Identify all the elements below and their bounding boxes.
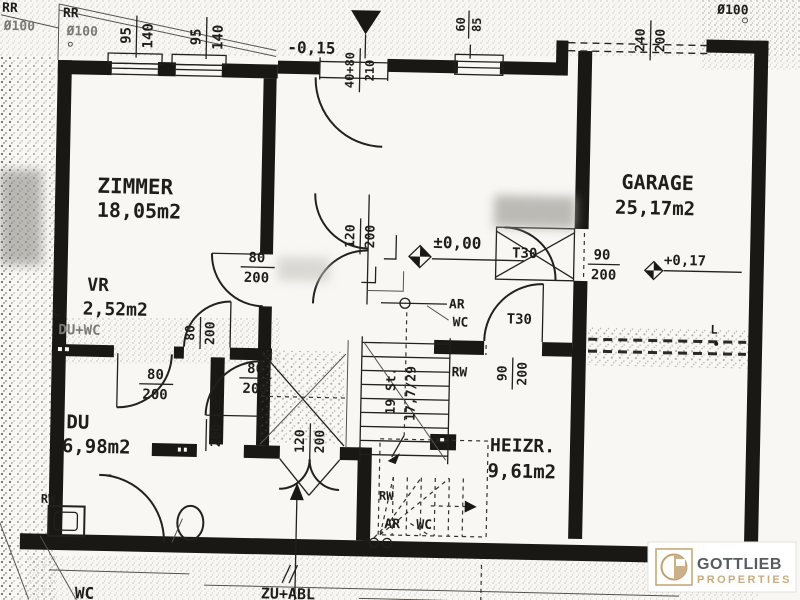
mark-l-left: L	[53, 305, 61, 319]
t30-low-label: T30	[506, 311, 532, 328]
room-area-zimmer: 18,05m2	[97, 198, 182, 224]
level-garage: +0,17	[664, 253, 706, 270]
win2-width: 95	[188, 28, 204, 45]
win2-height: 140	[210, 25, 227, 51]
win1-height: 140	[140, 23, 157, 49]
entry-door-width: 40+80	[342, 52, 357, 88]
level-ground: ±0,00	[433, 233, 482, 253]
t30-top-label: T30	[512, 246, 538, 263]
wc-double-height: 200	[313, 429, 328, 453]
vent-ar2: AR	[384, 517, 400, 532]
room-label-wc: WC	[75, 583, 95, 600]
wc-door-height: 200	[242, 381, 268, 398]
t30-low-width: 90	[495, 365, 510, 381]
win1-width: 95	[118, 27, 134, 44]
hall-double-width: 120	[343, 224, 358, 248]
level-entry: -0,15	[287, 38, 336, 58]
zimmer-door-width: 80	[248, 250, 265, 266]
stair-count: 19 St.	[384, 367, 400, 414]
vr-door-height: 200	[203, 321, 218, 345]
vent-zuabl: ZU+ABL	[261, 584, 316, 600]
vent-wc1: WC	[452, 315, 468, 330]
roof-drain-dia: Ø100	[716, 3, 749, 19]
vent-rw3: RW	[379, 489, 395, 503]
floorplan-drawing: RR Ø100 RR Ø100 Ø100 95 140 95 140 60 85…	[0, 0, 800, 600]
vent-ar1: AR	[449, 297, 465, 312]
entry-door-height: 210	[363, 60, 377, 82]
room-label-duwc: DU+WC	[58, 322, 100, 339]
brand-name: GOTTLIEB	[697, 556, 782, 573]
t30-top-height: 200	[591, 267, 617, 284]
win3-height: 85	[470, 17, 484, 32]
t30-top-width: 90	[593, 247, 610, 263]
brand-tagline: PROPERTIES	[697, 574, 792, 586]
garage-door-width: 240	[633, 28, 648, 52]
wc-double-width: 120	[293, 429, 308, 453]
brand-logo: GOTTLIEB PROPERTIES	[648, 542, 796, 592]
vr-door-width: 80	[183, 325, 198, 341]
small-door-height: 200	[209, 423, 224, 447]
room-area-du: 6,98m2	[62, 435, 131, 458]
garage-door-height: 200	[653, 29, 668, 53]
rr1-label: RR	[2, 1, 18, 16]
vent-rw1: RW	[451, 365, 467, 380]
room-label-vr: VR	[87, 275, 109, 296]
rr2-label: RR	[63, 6, 79, 21]
t30-low-height: 200	[515, 362, 530, 386]
vent-rw2: RW	[41, 492, 57, 506]
room-area-vr: 2,52m2	[83, 299, 148, 321]
room-label-heizr: HEIZR.	[490, 435, 555, 457]
du-door-width: 80	[147, 367, 164, 383]
rr2-dia: Ø100	[65, 24, 98, 40]
room-area-heizr: 9,61m2	[487, 460, 556, 483]
hall-double-height: 200	[363, 224, 378, 248]
room-label-du: DU	[66, 411, 89, 433]
room-area-garage: 25,17m2	[615, 197, 696, 221]
small-door-dim: 200	[206, 419, 225, 451]
wc-door-width: 80	[247, 361, 264, 377]
win3-width: 60	[454, 17, 468, 32]
room-label-garage: GARAGE	[621, 170, 694, 196]
room-label-zimmer: ZIMMER	[97, 174, 174, 200]
garage-dashed-band	[588, 327, 749, 368]
du-door-height: 200	[142, 387, 168, 404]
mark-l-right: L	[710, 323, 718, 337]
floorplan-scan: RR Ø100 RR Ø100 Ø100 95 140 95 140 60 85…	[0, 0, 800, 600]
stair-rise-run: 17,7/29	[404, 366, 420, 421]
rr1-dia: Ø100	[3, 19, 36, 35]
vent-wc2: WC	[416, 518, 432, 533]
zimmer-door-height: 200	[244, 270, 270, 287]
